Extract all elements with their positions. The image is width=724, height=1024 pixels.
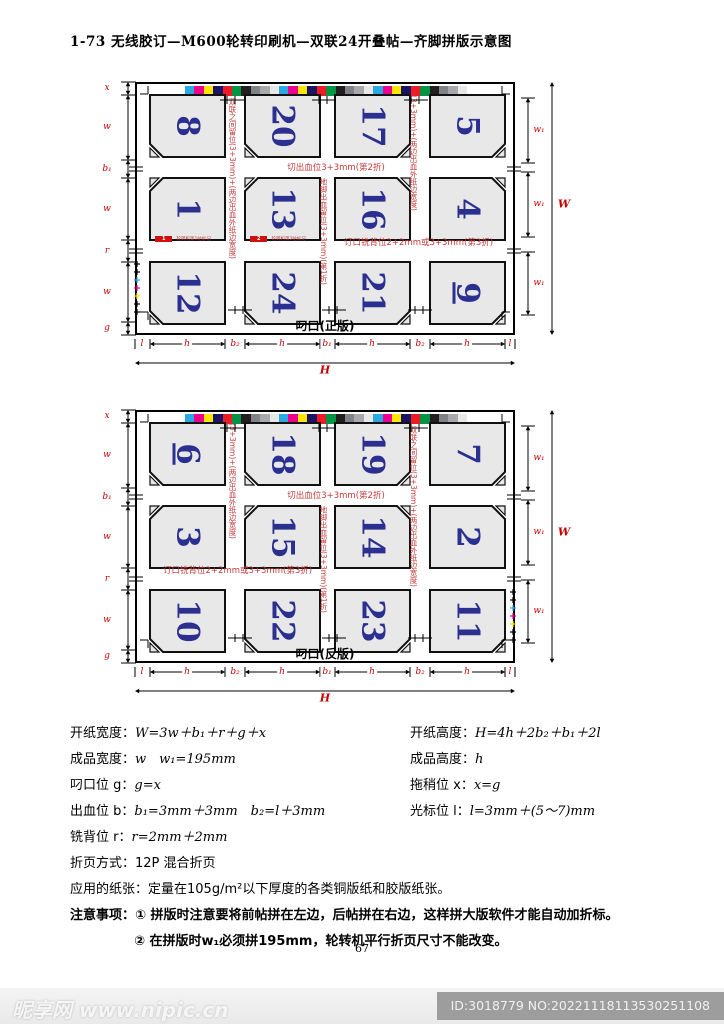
dimension-label: h xyxy=(277,667,287,677)
formula-label: 应用的纸张： xyxy=(70,882,148,897)
dimension-label: b₂ xyxy=(413,667,426,677)
formula-value: h xyxy=(475,752,483,767)
formula-value: r=2mm＋2mm xyxy=(131,830,227,845)
dimension-label: W xyxy=(558,526,570,539)
page-number: 67 xyxy=(0,942,724,955)
dimension-label: h xyxy=(277,339,287,349)
imposition-diagram-back: 61819731514210222311(3+3mm)+(两边出血外纸边宽度)地… xyxy=(60,410,660,720)
dimension-label: h xyxy=(367,667,377,677)
dimension-label: W xyxy=(558,198,570,211)
dimension-label: l xyxy=(507,339,514,349)
formula-label: 拖稍位 x： xyxy=(410,778,474,793)
dimension-label: x xyxy=(104,83,109,93)
dimension-label: r xyxy=(105,574,109,584)
dimension-label: w₁ xyxy=(533,125,544,135)
dimension-label: w xyxy=(103,204,111,214)
page-title: 1-73 无线胶订—M600轮转印刷机—双联24开叠帖—齐脚拼版示意图 xyxy=(70,30,512,50)
dimension-label: w xyxy=(103,450,111,460)
imposition-diagram-front: 8201751131641224219双联之间留位(3+3mm)+(两边出血外纸… xyxy=(60,82,660,392)
dimension-label: g xyxy=(104,323,110,333)
dimension-label: l xyxy=(507,667,514,677)
dimension-label: H xyxy=(318,692,332,705)
dimension-label: b₁ xyxy=(102,492,111,502)
dimension-label: b₂ xyxy=(413,339,426,349)
formula-label: 成品宽度： xyxy=(70,752,135,767)
watermark-logo: 昵享网 www.nipic.cn xyxy=(12,994,229,1023)
formula-label: 铣背位 r： xyxy=(70,830,131,845)
formula-value: g=x xyxy=(134,778,161,793)
dimension-label: g xyxy=(104,651,110,661)
formula-label: 开纸高度： xyxy=(410,726,475,741)
formula-value: 定量在105g/m²以下厚度的各类铜版纸和胶版纸张。 xyxy=(148,882,450,897)
dimension-label: b₁ xyxy=(320,339,333,349)
formula-label: 光标位 l： xyxy=(410,804,470,819)
dimension-label: r xyxy=(105,246,109,256)
dimension-label: w xyxy=(103,615,111,625)
formula-value: b₁=3mm＋3mm b₂=l＋3mm xyxy=(134,804,325,819)
formula-value: W=3w＋b₁＋r＋g＋x xyxy=(135,726,266,741)
dimension-label: w xyxy=(103,532,111,542)
dimension-label: h xyxy=(462,667,472,677)
formula-label: 成品高度： xyxy=(410,752,475,767)
dimension-label: l xyxy=(139,667,146,677)
dimension-label: h xyxy=(462,339,472,349)
dimension-label: b₂ xyxy=(228,339,241,349)
dimension-label: b₂ xyxy=(228,667,241,677)
dimension-label: w₁ xyxy=(533,199,544,209)
watermark-site-url: www.nipic.cn xyxy=(79,998,229,1022)
note-item-1: ① 拼版时注意要将前帖拼在左边，后帖拼在右边，这样拼大版软件才能自动加折标。 xyxy=(135,908,619,923)
dimension-label: h xyxy=(182,339,192,349)
dimension-label: b₁ xyxy=(320,667,333,677)
dimension-label: w₁ xyxy=(533,278,544,288)
dimension-label: w xyxy=(103,287,111,297)
formula-label: 折页方式： xyxy=(70,856,135,871)
dimension-label: h xyxy=(367,339,377,349)
notes-heading: 注意事项： xyxy=(70,908,135,923)
dimension-label: w₁ xyxy=(533,606,544,616)
dimension-label: w₁ xyxy=(533,453,544,463)
formula-value: H=4h＋2b₂＋b₁＋2l xyxy=(475,726,601,741)
formula-value: w w₁=195mm xyxy=(135,752,236,767)
watermark-bar: 昵享网 www.nipic.cn ID:3018779 NO:202211181… xyxy=(0,988,724,1024)
dimension-label: h xyxy=(182,667,192,677)
formula-label: 出血位 b： xyxy=(70,804,134,819)
formula-label: 开纸宽度： xyxy=(70,726,135,741)
dimension-label: x xyxy=(104,411,109,421)
formula-value: x=g xyxy=(474,778,501,793)
formula-value: 12P 混合折页 xyxy=(135,856,216,871)
formula-label: 叼口位 g： xyxy=(70,778,134,793)
dimension-label: H xyxy=(318,364,332,377)
dimension-label: w₁ xyxy=(533,527,544,537)
dimension-label: b₁ xyxy=(102,164,111,174)
watermark-site-name: 昵享网 xyxy=(12,998,72,1022)
watermark-id-label: ID:3018779 NO:20221118113530251108 xyxy=(437,992,724,1020)
dimension-label: l xyxy=(139,339,146,349)
dimension-label: w xyxy=(103,122,111,132)
formula-value: l=3mm＋(5～7)mm xyxy=(470,804,595,819)
